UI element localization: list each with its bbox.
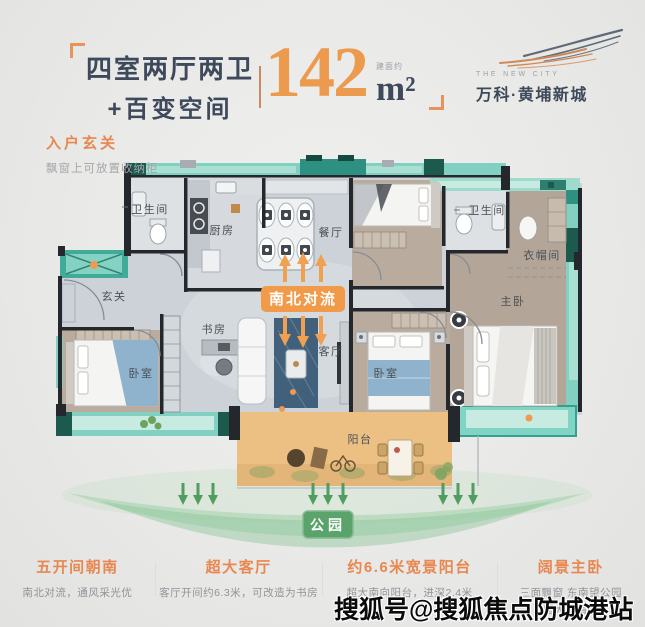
brand-logo: THE NEW CITY 万科·黄埔新城	[476, 28, 632, 105]
room-label-bedroom-right: 卧室	[374, 366, 399, 380]
room-label-living: 客厅	[319, 344, 344, 358]
corner-bracket-top-left	[70, 43, 85, 58]
feature-title: 阔景主卧	[501, 556, 641, 577]
area-unit-block: 建面约 m²	[376, 61, 416, 105]
entry-callout: 入户玄关 飘窗上可放置收纳柜	[46, 132, 159, 176]
entry-callout-title: 入户玄关	[46, 132, 159, 153]
area-value: 142	[265, 36, 367, 108]
headline-line1: 四室两厅两卫	[86, 49, 254, 86]
flow-badge-label: 南北对流	[269, 290, 337, 308]
room-label-bedroom-left: 卧室	[129, 366, 154, 380]
feature-title: 约6.6米宽景阳台	[326, 556, 492, 577]
logo-text-en: THE NEW CITY	[476, 71, 632, 78]
room-label-balcony: 阳台	[348, 432, 373, 446]
room-label-dining: 餐厅	[319, 225, 344, 239]
park-badge: 公园	[303, 511, 353, 538]
watermark-text: 搜狐号@搜狐焦点防城港站	[334, 590, 633, 626]
area-unit: m²	[376, 72, 416, 105]
headline-line2: +百变空间	[86, 89, 254, 124]
room-label-bath2: 卫生间	[468, 203, 506, 217]
feature-south-facing: 五开间朝南 南北对流，通风采光优	[0, 556, 155, 618]
feature-sub: 客厅开间约6.3米，可改造为书房	[159, 586, 319, 601]
feature-title: 超大客厅	[159, 556, 319, 577]
feature-living-room: 超大客厅 客厅开间约6.3米，可改造为书房	[155, 556, 323, 618]
room-label-bath1: 卫生间	[131, 202, 169, 216]
room-label-study: 书房	[202, 323, 227, 336]
area-divider-line	[259, 66, 261, 108]
poster-page: 卫生间 厨房 餐厅 卫生间 衣帽间 玄关 书房 客厅 卧室 卧室 主卧 阳台 南…	[0, 0, 645, 627]
park-badge-label: 公园	[310, 517, 346, 533]
room-label-closet: 衣帽间	[523, 248, 561, 262]
corner-bracket-bottom-right	[429, 95, 444, 110]
room-label-master: 主卧	[501, 295, 526, 308]
feature-title: 五开间朝南	[4, 556, 151, 577]
logo-swoosh-icon	[494, 28, 626, 70]
headline-block: 四室两厅两卫 +百变空间	[86, 49, 254, 124]
logo-text-cn: 万科·黄埔新城	[476, 81, 632, 105]
feature-sub: 南北对流，通风采光优	[4, 586, 151, 601]
room-label-kitchen: 厨房	[210, 224, 235, 237]
flow-badge: 南北对流	[261, 286, 345, 312]
entry-callout-note: 飘窗上可放置收纳柜	[46, 160, 159, 176]
room-label-foyer: 玄关	[102, 289, 127, 303]
